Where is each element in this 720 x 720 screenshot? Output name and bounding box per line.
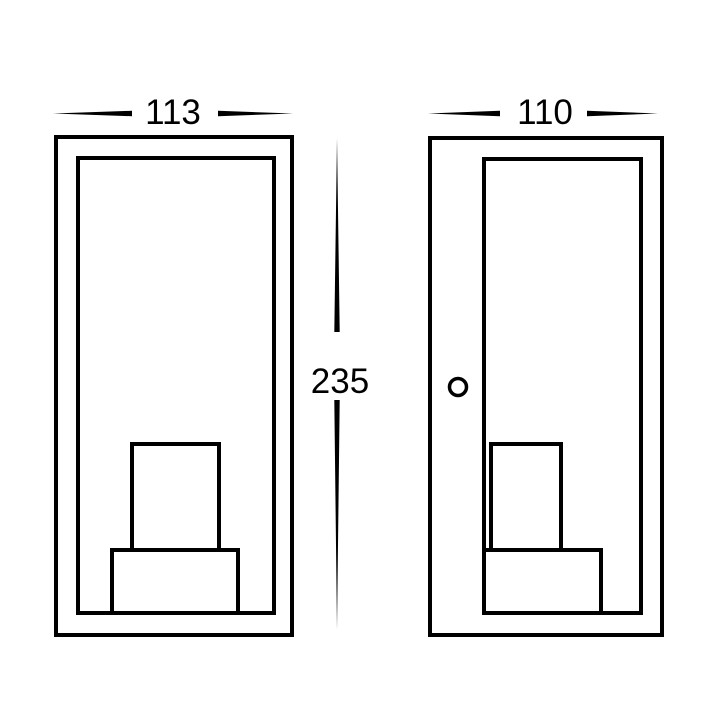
depth-dim-label: 110 [517,93,573,132]
height-dimension: 235 [311,138,369,630]
front-lamp-column [132,444,219,550]
depth-dim-line-right [587,111,658,116]
side-view [430,138,662,635]
side-lamp-column [491,444,561,550]
width-dim-line-right [218,111,293,116]
width-dim-line-left [53,111,132,116]
front-view [56,137,292,635]
depth-dim-line-left [428,111,500,116]
height-dim-label: 235 [311,362,369,401]
height-dim-line-bottom [334,400,339,630]
side-lamp-base [484,550,601,613]
width-dimension: 113 [53,93,293,132]
front-lamp-base [112,550,238,613]
dimension-drawing-page: 113 110 235 [0,0,720,720]
front-outer-frame [56,137,292,635]
height-dim-line-top [334,138,339,332]
wall-light-dimension-diagram: 113 110 235 [0,0,720,720]
depth-dimension: 110 [428,93,658,132]
side-mount-screw-circle [450,379,467,396]
width-dim-label: 113 [145,93,201,132]
front-inner-frame [78,158,274,613]
